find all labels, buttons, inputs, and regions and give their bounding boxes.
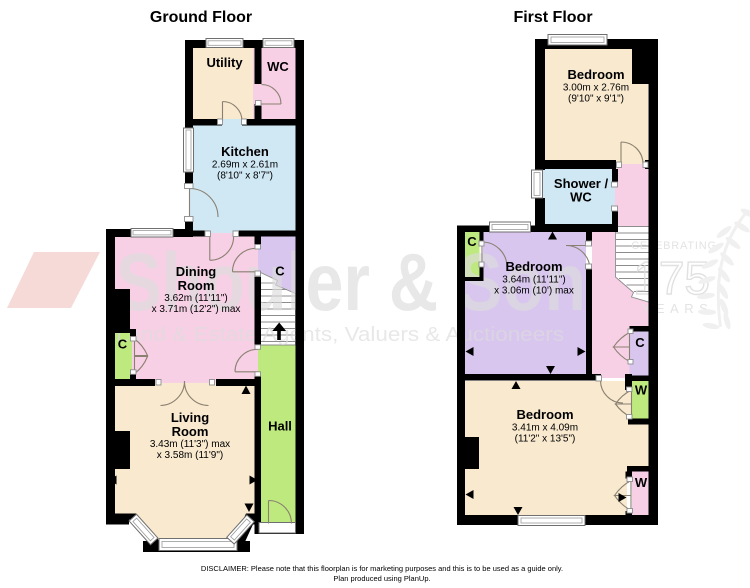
svg-text:Living: Living (171, 410, 209, 425)
svg-text:2.69m x 2.61m: 2.69m x 2.61m (212, 160, 278, 171)
svg-text:WC: WC (267, 59, 289, 74)
svg-text:CELEBRATING: CELEBRATING (631, 240, 717, 252)
svg-text:Utility: Utility (206, 55, 243, 70)
svg-text:Plan produced using PlanUp.: Plan produced using PlanUp. (333, 574, 430, 583)
svg-text:x 3.58m (11'9"): x 3.58m (11'9") (157, 450, 223, 461)
svg-text:C: C (275, 264, 285, 279)
svg-text:(9'10" x 9'1"): (9'10" x 9'1") (568, 94, 624, 105)
svg-text:x 3.06m (10') max: x 3.06m (10') max (494, 286, 574, 297)
svg-text:Ground Floor: Ground Floor (150, 9, 252, 26)
svg-text:(11'2" x 13'5"): (11'2" x 13'5") (515, 434, 576, 445)
svg-text:Room: Room (178, 278, 215, 293)
svg-text:Hall: Hall (268, 419, 292, 434)
svg-text:Bedroom: Bedroom (516, 407, 573, 422)
svg-text:Dining: Dining (176, 264, 216, 279)
svg-text:3.62m (11'11"): 3.62m (11'11") (164, 293, 227, 304)
svg-text:Bedroom: Bedroom (567, 67, 624, 82)
svg-text:3.64m (11'11"): 3.64m (11'11") (502, 275, 565, 286)
svg-text:C: C (467, 234, 477, 249)
svg-text:W: W (635, 383, 648, 398)
svg-text:x 3.71m (12'2") max: x 3.71m (12'2") max (152, 304, 241, 315)
svg-text:Kitchen: Kitchen (221, 144, 269, 159)
svg-text:3.43m (11'3") max: 3.43m (11'3") max (150, 439, 230, 450)
svg-text:3.00m x 2.76m: 3.00m x 2.76m (563, 83, 629, 94)
svg-text:W: W (635, 475, 648, 490)
svg-text:C: C (635, 335, 645, 350)
svg-text:WC: WC (570, 190, 592, 205)
svg-text:First Floor: First Floor (513, 9, 592, 26)
svg-text:Land & Estate Agents, Valuers: Land & Estate Agents, Valuers & Auctione… (116, 324, 564, 346)
svg-text:Bedroom: Bedroom (505, 259, 562, 274)
svg-text:Room: Room (172, 424, 209, 439)
svg-text:C: C (118, 337, 128, 352)
svg-text:DISCLAIMER: Please note that t: DISCLAIMER: Please note that this floorp… (201, 564, 563, 573)
svg-text:(8'10" x 8'7"): (8'10" x 8'7") (217, 171, 273, 182)
svg-text:3.41m x 4.09m: 3.41m x 4.09m (512, 423, 578, 434)
